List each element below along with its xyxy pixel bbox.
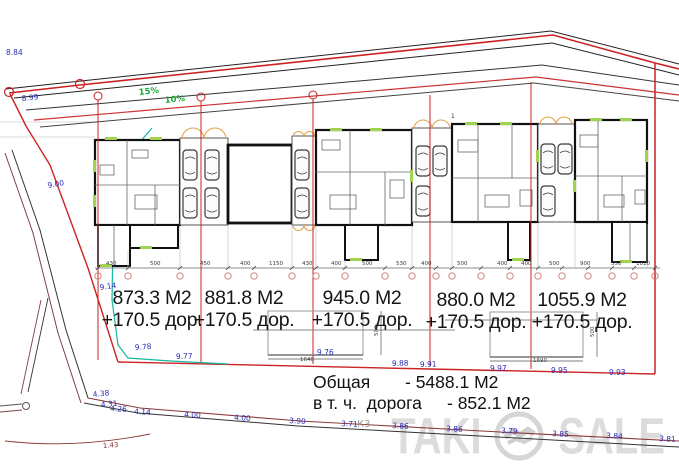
elevation-label: 9.91 [420, 359, 437, 369]
axis-bubbles [95, 273, 658, 279]
dimension-label: 550 [611, 261, 622, 267]
dimension-label: 430 [106, 261, 117, 267]
site-plan-canvas: 8.848.999.009.149.789.779.769.889.919.97… [0, 0, 679, 469]
grid-bubble [94, 92, 102, 100]
road-node-marker [23, 403, 30, 410]
grid-bubble [197, 93, 205, 101]
slope-label: 10% [164, 94, 186, 106]
garage-arc [293, 225, 315, 231]
elevation-label: 3.71 [341, 419, 358, 429]
dimension-label: 1150 [269, 261, 283, 267]
elevation-label: 4.00 [184, 410, 201, 420]
house-4 [575, 120, 647, 262]
dimension-label: 900 [580, 261, 591, 267]
elevation-label: 4.26 [110, 404, 127, 414]
dimension-label: 450 [200, 261, 211, 267]
elevation-label: 9.93 [609, 368, 626, 377]
elevation-label: 9.77 [176, 351, 193, 361]
dimension-label: 500 [457, 261, 468, 267]
dimension-label: 400 [497, 261, 508, 267]
driveway-plan [253, 311, 597, 361]
elevation-label: 3.79 [501, 426, 518, 436]
dimension-label: 1640 [300, 357, 314, 363]
site-plan-page: TAKI SALE [0, 0, 679, 469]
utility-label: К3 [357, 419, 370, 430]
left-road [0, 150, 88, 412]
elevation-label: 9.00 [47, 178, 65, 190]
elevation-label: 3.81 [659, 434, 676, 444]
elevation-label: 3.86 [392, 421, 409, 431]
house-1 [95, 140, 180, 266]
dimension-label: 500 [374, 325, 380, 336]
elevation-label: 4.14 [134, 407, 151, 417]
elevation-label: 9.78 [135, 342, 153, 352]
dimension-label: 500 [549, 261, 560, 267]
dimension-label: 400 [240, 261, 251, 267]
parking-bay [292, 132, 316, 231]
dimension-label: 530 [396, 261, 407, 267]
dimension-label: 400 [521, 261, 532, 267]
elevation-label: 9.97 [490, 364, 507, 373]
dimension-label: 400 [331, 261, 342, 267]
house-2 [316, 130, 412, 260]
dimension-label: 400 [421, 261, 432, 267]
dimension-label: 500 [362, 261, 373, 267]
elevation-label: 9.95 [551, 366, 568, 375]
parking-bay [180, 128, 228, 225]
dimension-label: 1690 [533, 358, 547, 364]
parking-bay [538, 117, 575, 222]
buildings-group [93, 117, 648, 267]
elevation-label: 9.14 [99, 281, 117, 292]
elevation-label: 9.76 [317, 348, 334, 357]
reference-lines [0, 122, 95, 137]
dimension-label: 1010 [636, 261, 650, 267]
elevation-label: 3.90 [289, 416, 306, 426]
elevation-label: 3.84 [606, 431, 623, 441]
contour-line [5, 434, 150, 444]
site-boundary-bottom [118, 362, 655, 374]
dimension-label: 500 [590, 326, 596, 337]
dimension-label: 500 [150, 261, 161, 267]
elevation-label: 8.99 [21, 92, 39, 103]
elevation-label: 3.86 [446, 424, 463, 434]
slope-label: 15% [138, 86, 160, 98]
garage-arc [182, 128, 226, 139]
contour-label: 1.43 [103, 441, 119, 450]
elevation-label: 3.85 [552, 429, 569, 439]
elevation-label: 8.84 [6, 48, 23, 57]
elevation-label: 4.38 [92, 388, 110, 399]
parking-bay [412, 120, 452, 222]
house-3 [452, 124, 538, 260]
dimension-label: 430 [302, 261, 313, 267]
elevation-label: 4.00 [234, 413, 251, 423]
elevation-label: 9.88 [392, 358, 409, 368]
hall-building [228, 145, 292, 223]
top-road-lines [6, 31, 679, 127]
marker-label: 1 [451, 113, 455, 120]
grid-bubble [309, 91, 317, 99]
